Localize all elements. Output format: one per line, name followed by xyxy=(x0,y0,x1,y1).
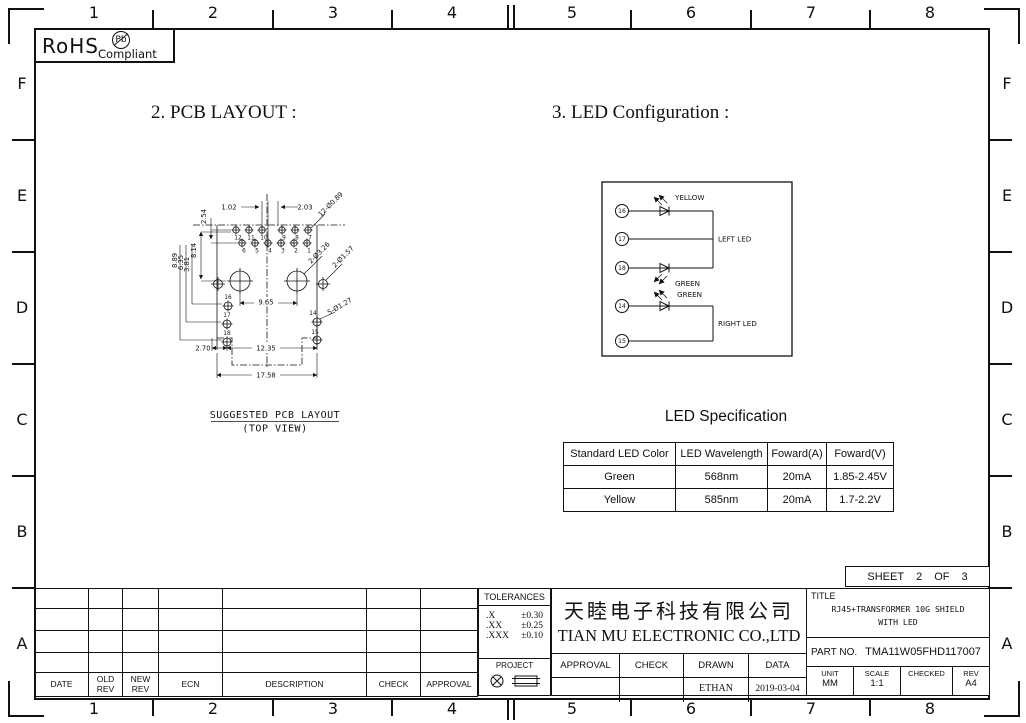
tolerance-label: .X xyxy=(486,611,495,621)
pin-number: 16 xyxy=(618,208,626,215)
dimension-labels: 2.54 1.02 2.03 12-Ø0.89 8.14 8.89 6.35 3… xyxy=(171,190,356,379)
grid-col-label: 1 xyxy=(83,3,105,23)
zone-tick xyxy=(272,10,274,28)
grid-col-label: 5 xyxy=(561,699,583,719)
unit-value: MM xyxy=(807,678,853,689)
pin-label: 5 xyxy=(255,249,259,255)
drawing-title-line2: WITH LED xyxy=(807,617,989,627)
cell: Yellow xyxy=(564,489,676,512)
tolerances-title: TOLERANCES xyxy=(479,589,550,606)
company-box: 天睦电子科技有限公司 TIAN MU ELECTRONIC CO.,LTD AP… xyxy=(551,588,807,696)
rohs-stamp: RoHS Pb Compliant xyxy=(34,28,175,63)
grid-col-label: 5 xyxy=(561,3,583,23)
dim-label: 12.35 xyxy=(256,345,275,353)
yellow-label: YELLOW xyxy=(674,193,704,202)
grid-row-label: F xyxy=(11,74,33,94)
pin-label: 15 xyxy=(311,330,319,336)
sign-value-row: ETHAN 2019-03-04 xyxy=(552,678,806,702)
tolerance-row: .X ±0.30 xyxy=(486,611,543,621)
col-header: ECN xyxy=(159,673,223,697)
grid-col-label: 8 xyxy=(919,3,941,23)
left-led-label: LEFT LED xyxy=(718,235,752,244)
col-header: OLD REV xyxy=(89,673,123,697)
revision-table: DATE OLD REV NEW REV ECN DESCRIPTION CHE… xyxy=(34,588,478,697)
sheet-number: 2 xyxy=(916,571,922,583)
date-value: 2019-03-04 xyxy=(749,678,806,702)
zone-tick xyxy=(507,700,509,720)
dim-label: 9.65 xyxy=(258,299,273,307)
sign-header-row: APPROVAL CHECK DRAWN DATA xyxy=(552,654,806,678)
cell: 20mA xyxy=(768,489,827,512)
led-pin-numbers: 16 17 18 14 15 xyxy=(618,208,626,345)
zone-tick xyxy=(391,10,393,28)
zone-tick xyxy=(869,700,871,716)
led-config-heading: 3. LED Configuration : xyxy=(552,102,729,124)
dim-label: 2.54 xyxy=(200,209,208,224)
zone-tick xyxy=(12,139,34,141)
col-header: CHECK xyxy=(367,673,421,697)
rev-label: REV xyxy=(953,669,989,678)
pin-label: 3 xyxy=(281,249,285,255)
tolerance-value: ±0.10 xyxy=(521,631,543,641)
rev-value: A4 xyxy=(953,678,989,689)
col-header: Standard LED Color xyxy=(564,443,676,466)
pcb-caption-line1: SUGGESTED PCB LAYOUT xyxy=(210,410,340,421)
check-value xyxy=(620,678,684,702)
col-header: APPROVAL xyxy=(421,673,478,697)
green-label: GREEN xyxy=(675,279,700,288)
pin-label: 8 xyxy=(295,236,299,242)
pin-number: 17 xyxy=(618,236,626,243)
part-no-section: PART NO. TMA11W05FHD117007 xyxy=(807,638,989,667)
grid-row-label: B xyxy=(11,522,33,542)
grid-col-label: 7 xyxy=(800,3,822,23)
grid-row-label: C xyxy=(11,410,33,430)
pcb-layout-drawing: 12 11 10 9 8 7 6 5 4 3 2 1 16 17 18 14 1… xyxy=(165,188,415,448)
grid-col-label: 4 xyxy=(441,3,463,23)
grid-col-label: 8 xyxy=(919,699,941,719)
grid-row-label: D xyxy=(996,298,1018,318)
zone-tick xyxy=(750,700,752,716)
revision-empty-row xyxy=(35,589,478,609)
drawn-value: ETHAN xyxy=(684,678,749,702)
grid-row-label: F xyxy=(996,74,1018,94)
grid-col-label: 1 xyxy=(83,699,105,719)
pin-label: 9 xyxy=(282,236,286,242)
right-led-wires xyxy=(629,306,714,341)
data-header: DATA xyxy=(749,654,806,677)
tolerances-values: .X ±0.30 .XX ±0.25 .XXX ±0.10 xyxy=(479,606,550,658)
led-color-labels: YELLOW GREEN GREEN LEFT LED RIGHT LED xyxy=(674,193,757,328)
approval-value xyxy=(552,678,620,702)
checked-cell: CHECKED xyxy=(901,667,953,695)
pin-label: 1 xyxy=(307,249,311,255)
pin-label: 14 xyxy=(309,311,317,317)
pin-label: 11 xyxy=(247,236,255,242)
cell: 20mA xyxy=(768,466,827,489)
projection-symbol-icon xyxy=(485,670,545,692)
emission-arrow xyxy=(659,290,667,298)
dim-top-ext xyxy=(262,201,278,239)
scale-value: 1:1 xyxy=(854,678,900,689)
company-name-en: TIAN MU ELECTRONIC CO.,LTD xyxy=(552,626,806,646)
revision-empty-row xyxy=(35,609,478,631)
revision-empty-row xyxy=(35,653,478,673)
dim-label: 3.81 xyxy=(183,257,191,272)
zone-tick xyxy=(630,10,632,28)
grid-col-label: 3 xyxy=(322,699,344,719)
cell: 1.85-2.45V xyxy=(827,466,894,489)
grid-row-label: D xyxy=(11,298,33,318)
zone-tick xyxy=(152,700,154,716)
right-led-label: RIGHT LED xyxy=(718,319,757,328)
sheet-of: OF xyxy=(934,571,949,583)
zone-tick xyxy=(152,10,154,28)
pin-number-labels: 12 11 10 9 8 7 6 5 4 3 2 1 16 17 18 14 1… xyxy=(223,236,319,338)
col-header: Foward(V) xyxy=(827,443,894,466)
col-header: DESCRIPTION xyxy=(223,673,367,697)
title-section: TITLE RJ45+TRANSFORMER 10G SHIELD WITH L… xyxy=(807,589,989,638)
projection-box: PROJECT xyxy=(479,658,550,701)
check-header: CHECK xyxy=(620,654,684,677)
drawing-sheet: 1 2 3 4 5 6 7 8 1 2 3 4 5 6 7 8 F E D C … xyxy=(0,0,1026,723)
dim-left-ext xyxy=(180,304,222,340)
post-hole-cross xyxy=(211,277,225,291)
led-spec-header-row: Standard LED Color LED Wavelength Foward… xyxy=(564,443,894,466)
drawing-title-line1: RJ45+TRANSFORMER 10G SHIELD xyxy=(807,604,989,614)
tolerance-value: ±0.30 xyxy=(521,611,543,621)
zone-tick xyxy=(750,10,752,28)
drawn-header: DRAWN xyxy=(684,654,749,677)
company-names: 天睦电子科技有限公司 TIAN MU ELECTRONIC CO.,LTD xyxy=(552,595,806,654)
cell: 1.7-2.2V xyxy=(827,489,894,512)
zone-tick xyxy=(990,251,1012,253)
part-no-value: TMA11W05FHD117007 xyxy=(857,646,989,658)
unit-label: UNIT xyxy=(807,669,853,678)
col-header: LED Wavelength xyxy=(676,443,768,466)
dim-814-ext xyxy=(201,232,231,281)
revision-empty-row xyxy=(35,631,478,653)
zone-tick xyxy=(990,475,1012,477)
pin-label: 7 xyxy=(308,236,312,242)
emission-arrow xyxy=(659,276,667,284)
approval-header: APPROVAL xyxy=(552,654,620,677)
col-header: DATE xyxy=(35,673,89,697)
cell: 568nm xyxy=(676,466,768,489)
pcb-layout-heading: 2. PCB LAYOUT : xyxy=(151,102,297,124)
emission-arrow xyxy=(654,292,662,300)
pin-label: 12 xyxy=(234,236,242,242)
table-row: Yellow 585nm 20mA 1.7-2.2V xyxy=(564,489,894,512)
zone-tick xyxy=(12,475,34,477)
tolerance-label: .XX xyxy=(486,621,502,631)
cell: Green xyxy=(564,466,676,489)
pin-label: 18 xyxy=(223,331,231,337)
pin-label: 17 xyxy=(223,313,231,319)
sheet-label: SHEET xyxy=(867,571,904,583)
title-block: TITLE RJ45+TRANSFORMER 10G SHIELD WITH L… xyxy=(806,588,990,696)
scale-cell: SCALE 1:1 xyxy=(854,667,901,695)
title-label: TITLE xyxy=(811,591,836,601)
part-no-label: PART NO. xyxy=(811,647,857,658)
scale-label: SCALE xyxy=(854,669,900,678)
grid-col-label: 6 xyxy=(680,3,702,23)
zone-tick xyxy=(12,251,34,253)
emission-arrow xyxy=(654,197,662,205)
pin-number: 14 xyxy=(618,303,626,310)
zone-tick xyxy=(391,700,393,716)
zone-tick xyxy=(272,700,274,716)
dim-label: 8.14 xyxy=(190,243,198,258)
unit-cell: UNIT MM xyxy=(807,667,854,695)
col-header: NEW REV xyxy=(123,673,159,697)
dim-label: 2.70 xyxy=(195,345,210,353)
tolerance-label: .XXX xyxy=(486,631,509,641)
mounting-hole-cross xyxy=(227,268,253,294)
grid-col-label: 3 xyxy=(322,3,344,23)
grid-col-label: 2 xyxy=(202,699,224,719)
tolerance-row: .XX ±0.25 xyxy=(486,621,543,631)
rohs-label: RoHS xyxy=(42,34,99,58)
pin-row-1 xyxy=(232,226,313,235)
emission-arrow xyxy=(654,274,662,282)
tolerance-value: ±0.25 xyxy=(521,621,543,631)
checked-label: CHECKED xyxy=(901,669,952,678)
grid-col-label: 2 xyxy=(202,3,224,23)
sheet-total: 3 xyxy=(961,571,967,583)
col-header: Foward(A) xyxy=(768,443,827,466)
emission-arrow xyxy=(659,195,667,203)
pin-label: 10 xyxy=(260,236,268,242)
led-config-diagram: 16 17 18 14 15 YELLOW GREEN GREEN LEFT L… xyxy=(596,176,798,362)
zone-tick xyxy=(990,139,1012,141)
left-led-wires xyxy=(629,211,714,268)
rev-cell: REV A4 xyxy=(953,667,989,695)
grid-col-label: 4 xyxy=(441,699,463,719)
tolerances-box: TOLERANCES .X ±0.30 .XX ±0.25 .XXX ±0.10… xyxy=(478,588,551,696)
dim-label: 12-Ø0.89 xyxy=(317,190,345,218)
pin-label: 4 xyxy=(268,249,272,255)
table-row: Green 568nm 20mA 1.85-2.45V xyxy=(564,466,894,489)
led-spec-table: Standard LED Color LED Wavelength Foward… xyxy=(563,442,894,512)
dim-label: 2-Ø1.57 xyxy=(331,244,356,269)
grid-row-label: A xyxy=(996,634,1018,654)
rohs-compliant-label: Compliant xyxy=(98,47,157,61)
pcb-caption-line2: (TOP VIEW) xyxy=(242,424,307,435)
zone-tick xyxy=(12,587,34,589)
project-label: PROJECT xyxy=(479,661,550,670)
zone-tick xyxy=(12,363,34,365)
green-label: GREEN xyxy=(677,290,702,299)
dim-label: 2.03 xyxy=(297,204,312,212)
grid-col-label: 7 xyxy=(800,699,822,719)
grid-row-label: B xyxy=(996,522,1018,542)
zone-tick xyxy=(630,700,632,716)
sheet-box: SHEET 2 OF 3 xyxy=(845,566,990,587)
company-name-cn: 天睦电子科技有限公司 xyxy=(552,595,806,624)
zone-tick xyxy=(869,10,871,28)
zone-tick xyxy=(507,5,509,28)
led-spec-title: LED Specification xyxy=(637,408,815,426)
pin-label: 2 xyxy=(294,249,298,255)
grid-row-label: C xyxy=(996,410,1018,430)
dim-label: 1.02 xyxy=(221,204,236,212)
post-hole-cross xyxy=(316,277,330,291)
cell: 585nm xyxy=(676,489,768,512)
zone-tick xyxy=(513,700,515,720)
revision-header-row: DATE OLD REV NEW REV ECN DESCRIPTION CHE… xyxy=(35,673,478,697)
zone-tick xyxy=(990,587,1012,589)
grid-col-label: 6 xyxy=(680,699,702,719)
dim-label: 17.58 xyxy=(256,372,275,380)
led-config-border xyxy=(602,182,792,356)
pin-number: 15 xyxy=(618,338,626,345)
zone-tick xyxy=(990,363,1012,365)
pin-number: 18 xyxy=(618,265,626,272)
title-footer-row: UNIT MM SCALE 1:1 CHECKED REV A4 xyxy=(807,667,989,695)
dim-label: 5-Ø1.27 xyxy=(326,296,354,317)
pin-label: 6 xyxy=(242,249,246,255)
grid-row-label: A xyxy=(11,634,33,654)
pin-label: 16 xyxy=(224,295,232,301)
grid-row-label: E xyxy=(996,186,1018,206)
zone-tick xyxy=(513,5,515,28)
tolerance-row: .XXX ±0.10 xyxy=(486,631,543,641)
grid-row-label: E xyxy=(11,186,33,206)
